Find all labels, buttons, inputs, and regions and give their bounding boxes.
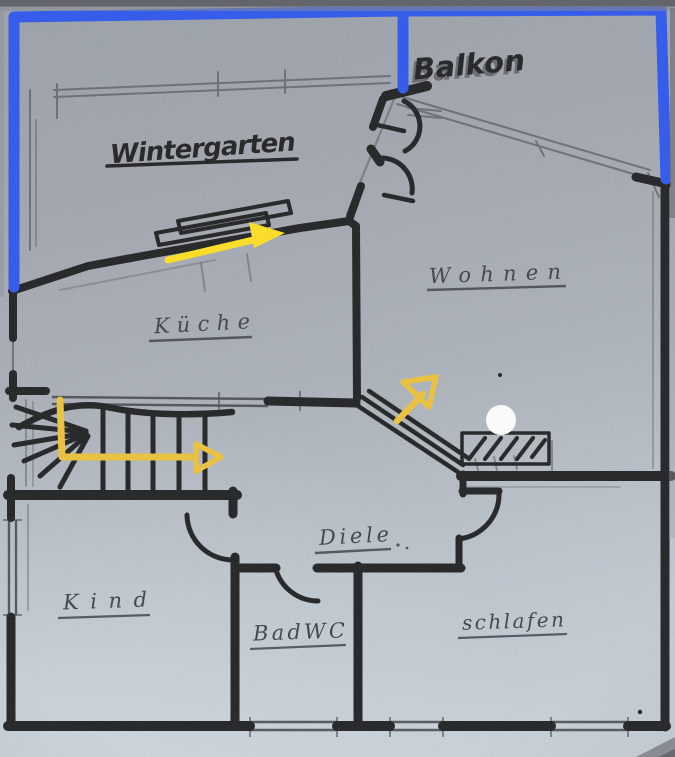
floorplan-drawing: Balkon Balkon Wintergarten Wohnen Küche … xyxy=(0,0,675,757)
floorplan-photo: Balkon Balkon Wintergarten Wohnen Küche … xyxy=(0,0,675,757)
paper-grain xyxy=(0,0,675,757)
